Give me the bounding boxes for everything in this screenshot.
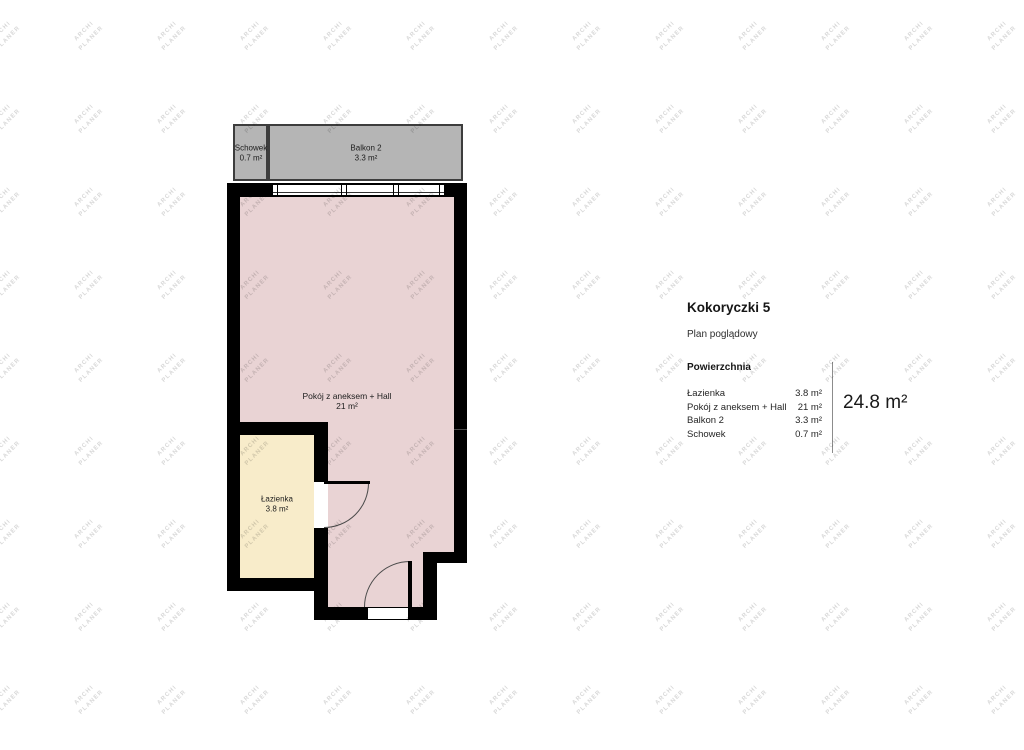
watermark: ARCHIPLANER [568,349,605,386]
watermark: ARCHIPLANER [817,681,854,718]
watermark: ARCHIPLANER [651,183,688,220]
watermark: ARCHIPLANER [983,349,1020,386]
watermark: ARCHIPLANER [817,598,854,635]
watermark: ARCHIPLANER [153,515,190,552]
main-room-label: Pokój z aneksem + Hall 21 m² [302,391,391,411]
watermark: ARCHIPLANER [651,266,688,303]
legend-row-label: Łazienka [687,388,725,402]
wall-right [454,183,467,563]
watermark: ARCHIPLANER [734,681,771,718]
legend-rows: Łazienka 3.8 m² Pokój z aneksem + Hall 2… [687,388,822,442]
watermark: ARCHIPLANER [485,183,522,220]
watermark: ARCHIPLANER [319,681,356,718]
watermark: ARCHIPLANER [983,266,1020,303]
bathroom-name: Łazienka [261,494,293,504]
window-band [273,183,444,197]
watermark: ARCHIPLANER [485,100,522,137]
watermark: ARCHIPLANER [236,17,273,54]
watermark: ARCHIPLANER [651,515,688,552]
watermark: ARCHIPLANER [153,349,190,386]
legend-row-value: 0.7 m² [795,429,822,443]
watermark: ARCHIPLANER [485,17,522,54]
watermark: ARCHIPLANER [651,432,688,469]
legend-row: Schowek 0.7 m² [687,429,822,443]
legend-section-header: Powierzchnia [687,362,751,373]
watermark: ARCHIPLANER [70,681,107,718]
balcony-name: Balkon 2 [350,143,381,153]
watermark: ARCHIPLANER [568,266,605,303]
watermark: ARCHIPLANER [485,266,522,303]
bathroom-area-value: 3.8 m² [261,504,293,514]
legend-row: Łazienka 3.8 m² [687,388,822,402]
watermark: ARCHIPLANER [734,183,771,220]
watermark: ARCHIPLANER [485,681,522,718]
watermark: ARCHIPLANER [900,100,937,137]
watermark: ARCHIPLANER [236,598,273,635]
watermark: ARCHIPLANER [568,515,605,552]
watermark: ARCHIPLANER [153,183,190,220]
legend-row-value: 3.8 m² [795,388,822,402]
watermark: ARCHIPLANER [983,598,1020,635]
legend-subtitle: Plan poglądowy [687,329,758,340]
watermark: ARCHIPLANER [0,598,23,635]
watermark: ARCHIPLANER [70,349,107,386]
watermark: ARCHIPLANER [983,515,1020,552]
watermark: ARCHIPLANER [402,17,439,54]
watermark: ARCHIPLANER [70,432,107,469]
bathroom-door-leaf [324,481,370,484]
watermark: ARCHIPLANER [153,17,190,54]
legend-row-value: 3.3 m² [795,415,822,429]
watermark: ARCHIPLANER [568,183,605,220]
watermark: ARCHIPLANER [0,266,23,303]
floor-plan-page: Schowek 0.7 m² Balkon 2 3.3 m² Pokój z a… [0,0,1024,750]
legend-row-value: 21 m² [798,402,822,416]
watermark: ARCHIPLANER [568,100,605,137]
legend-row-label: Schowek [687,429,726,443]
bathroom-label: Łazienka 3.8 m² [261,494,293,513]
watermark: ARCHIPLANER [734,17,771,54]
watermark: ARCHIPLANER [900,17,937,54]
legend-divider [832,362,833,453]
watermark: ARCHIPLANER [0,17,23,54]
watermark: ARCHIPLANER [900,598,937,635]
schowek-label: Schowek 0.7 m² [235,143,267,162]
window-jamb-left [277,185,278,195]
watermark: ARCHIPLANER [983,100,1020,137]
main-room-area-value: 21 m² [302,401,391,411]
legend-row-label: Balkon 2 [687,415,724,429]
legend-title: Kokoryczki 5 [687,300,770,315]
total-area: 24.8 m² [843,392,907,414]
balcony-label: Balkon 2 3.3 m² [350,143,381,162]
watermark: ARCHIPLANER [651,17,688,54]
watermark: ARCHIPLANER [153,598,190,635]
schowek-area-value: 0.7 m² [235,153,267,163]
window-glass-line [273,192,444,193]
wall-bathroom-bottom [227,578,328,591]
watermark: ARCHIPLANER [402,681,439,718]
watermark: ARCHIPLANER [817,17,854,54]
watermark: ARCHIPLANER [153,100,190,137]
watermark: ARCHIPLANER [70,515,107,552]
wall-left [227,183,240,591]
legend-row: Balkon 2 3.3 m² [687,415,822,429]
entrance-threshold [367,607,409,620]
watermark: ARCHIPLANER [568,432,605,469]
schowek-name: Schowek [235,143,267,153]
wall-joint-line [454,429,467,430]
watermark: ARCHIPLANER [153,266,190,303]
watermark: ARCHIPLANER [568,598,605,635]
watermark: ARCHIPLANER [983,681,1020,718]
watermark: ARCHIPLANER [568,681,605,718]
legend: Kokoryczki 5 Plan poglądowy Powierzchnia… [687,296,922,466]
watermark: ARCHIPLANER [485,432,522,469]
legend-row: Pokój z aneksem + Hall 21 m² [687,402,822,416]
watermark: ARCHIPLANER [153,432,190,469]
entrance-door-leaf [408,561,412,607]
watermark: ARCHIPLANER [734,100,771,137]
watermark: ARCHIPLANER [651,681,688,718]
watermark: ARCHIPLANER [153,681,190,718]
watermark: ARCHIPLANER [568,17,605,54]
watermark: ARCHIPLANER [70,17,107,54]
watermark: ARCHIPLANER [70,266,107,303]
watermark: ARCHIPLANER [319,17,356,54]
watermark: ARCHIPLANER [817,515,854,552]
bathroom-door-arc [324,483,369,528]
watermark: ARCHIPLANER [485,349,522,386]
watermark: ARCHIPLANER [983,183,1020,220]
watermark: ARCHIPLANER [0,681,23,718]
window-mullion [393,185,399,195]
watermark: ARCHIPLANER [485,515,522,552]
watermark: ARCHIPLANER [983,432,1020,469]
watermark: ARCHIPLANER [0,515,23,552]
watermark: ARCHIPLANER [817,183,854,220]
watermark: ARCHIPLANER [485,598,522,635]
watermark: ARCHIPLANER [236,681,273,718]
watermark: ARCHIPLANER [900,183,937,220]
legend-row-label: Pokój z aneksem + Hall [687,402,787,416]
watermark: ARCHIPLANER [900,515,937,552]
window-mullion [341,185,347,195]
entrance-door-arc [364,561,410,607]
main-room-name: Pokój z aneksem + Hall [302,391,391,401]
watermark: ARCHIPLANER [734,598,771,635]
watermark: ARCHIPLANER [70,100,107,137]
watermark: ARCHIPLANER [70,598,107,635]
watermark: ARCHIPLANER [817,100,854,137]
watermark: ARCHIPLANER [0,100,23,137]
watermark: ARCHIPLANER [70,183,107,220]
watermark: ARCHIPLANER [0,183,23,220]
watermark: ARCHIPLANER [900,681,937,718]
watermark: ARCHIPLANER [0,349,23,386]
watermark: ARCHIPLANER [651,349,688,386]
balcony-area-value: 3.3 m² [350,153,381,163]
watermark: ARCHIPLANER [734,515,771,552]
window-jamb-right [439,185,440,195]
watermark: ARCHIPLANER [0,432,23,469]
watermark: ARCHIPLANER [651,100,688,137]
wall-step [423,552,467,563]
watermark: ARCHIPLANER [983,17,1020,54]
watermark: ARCHIPLANER [651,598,688,635]
